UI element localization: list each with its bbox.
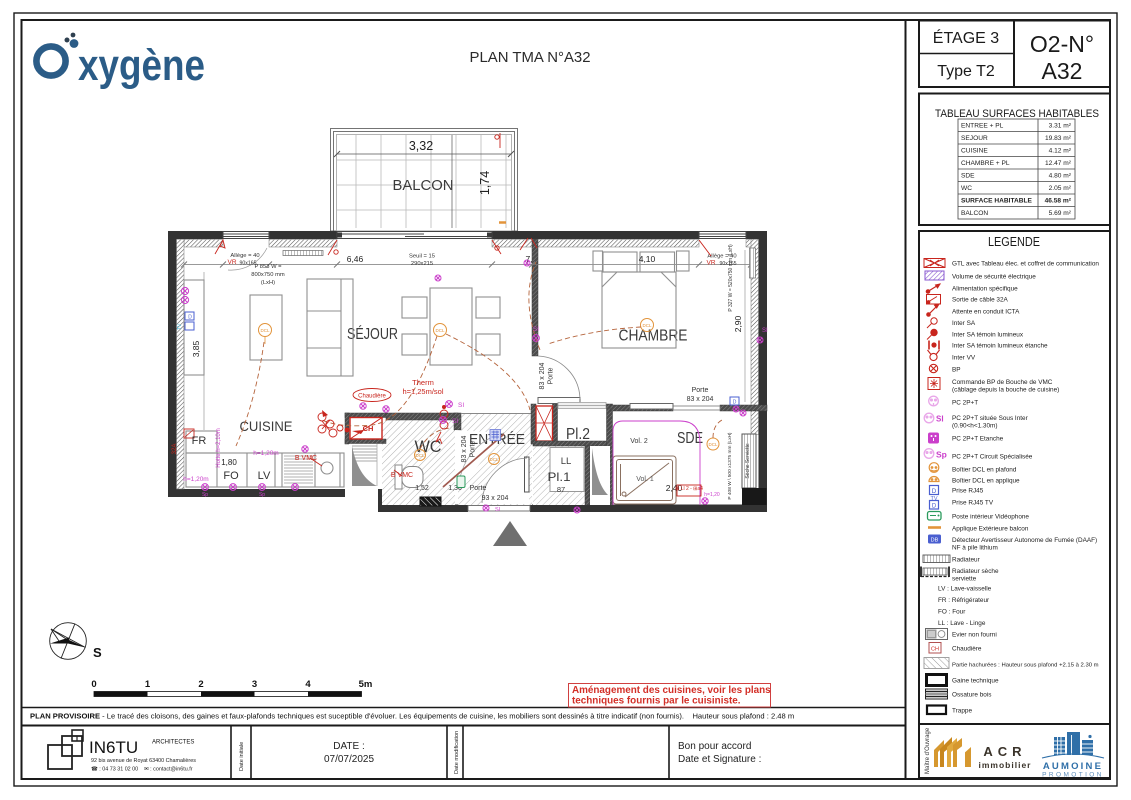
svg-text:Attente en conduit ICTA: Attente en conduit ICTA bbox=[952, 308, 1020, 315]
svg-text:Gaine technique: Gaine technique bbox=[952, 677, 999, 684]
svg-text:Inter SA témoin lumineux: Inter SA témoin lumineux bbox=[952, 331, 1024, 338]
svg-text:SI: SI bbox=[495, 507, 501, 513]
svg-text:SI: SI bbox=[936, 415, 944, 424]
svg-text:Type T2: Type T2 bbox=[937, 63, 995, 80]
svg-text:Aménagement des cuisines, voir: Aménagement des cuisines, voir les plans bbox=[572, 685, 771, 696]
svg-text:WC: WC bbox=[961, 185, 972, 192]
svg-text:Applique Extérieure balcon: Applique Extérieure balcon bbox=[952, 525, 1029, 532]
svg-text:Porte: Porte bbox=[548, 368, 555, 385]
svg-text:93 x 204: 93 x 204 bbox=[482, 495, 509, 502]
svg-text:1,80: 1,80 bbox=[221, 458, 237, 467]
svg-text:CH: CH bbox=[931, 647, 939, 653]
svg-text:Sp: Sp bbox=[202, 492, 208, 498]
svg-text:ÉTAGE 3: ÉTAGE 3 bbox=[933, 28, 999, 47]
svg-text:Date initiale: Date initiale bbox=[239, 742, 245, 771]
svg-text:12.47 m²: 12.47 m² bbox=[1045, 160, 1072, 167]
svg-text:5.69 m²: 5.69 m² bbox=[1049, 210, 1072, 217]
svg-text:2: 2 bbox=[198, 679, 203, 690]
svg-text:SI: SI bbox=[458, 402, 464, 409]
svg-text:3,85: 3,85 bbox=[191, 340, 201, 357]
svg-text:4,10: 4,10 bbox=[639, 254, 656, 264]
svg-text:TABLEAU SURFACES HABITABLES: TABLEAU SURFACES HABITABLES bbox=[935, 108, 1099, 120]
svg-text:TV: TV bbox=[177, 323, 183, 330]
svg-text:AUMOINE: AUMOINE bbox=[1043, 761, 1103, 772]
svg-text:h=1,20m: h=1,20m bbox=[183, 476, 208, 483]
svg-text:A32: A32 bbox=[1042, 58, 1083, 84]
svg-text:O2-N°: O2-N° bbox=[1030, 31, 1094, 57]
svg-text:46.58 m²: 46.58 m² bbox=[1045, 197, 1072, 204]
svg-text:FO: FO bbox=[223, 470, 239, 482]
svg-text:PROMOTION: PROMOTION bbox=[1042, 772, 1104, 779]
svg-text:PLAN TMA N°A32: PLAN TMA N°A32 bbox=[470, 49, 591, 66]
svg-text:DCL: DCL bbox=[260, 328, 269, 333]
svg-text:1,74: 1,74 bbox=[478, 171, 492, 195]
svg-text:Pl.2: Pl.2 bbox=[566, 426, 590, 443]
svg-text:Date et Signature :: Date et Signature : bbox=[678, 754, 761, 765]
svg-text:Trappe: Trappe bbox=[952, 707, 972, 714]
svg-text:4.12 m²: 4.12 m² bbox=[1049, 147, 1072, 154]
svg-text:83 x 204: 83 x 204 bbox=[687, 396, 714, 403]
svg-text:Sp: Sp bbox=[936, 450, 947, 460]
svg-text:SI: SI bbox=[452, 418, 458, 425]
svg-text:☎ : 04 73 31 02 00 ✉ : cont: ☎ : 04 73 31 02 00 ✉ : contact@in6tu.fr bbox=[91, 767, 193, 773]
svg-text:BP: BP bbox=[952, 366, 961, 373]
svg-text:Date modification: Date modification bbox=[454, 731, 460, 774]
svg-text:PLAN PROVISOIRE - Le tracé des: PLAN PROVISOIRE - Le tracé des cloisons,… bbox=[30, 712, 794, 721]
svg-text:techniques fournis par le cuis: techniques fournis par le cuisiniste. bbox=[572, 696, 741, 707]
svg-text:DATE :: DATE : bbox=[333, 741, 364, 752]
svg-text:LEGENDE: LEGENDE bbox=[988, 234, 1040, 249]
svg-text:D: D bbox=[733, 400, 737, 406]
svg-text:(câblage depuis la bouche de c: (câblage depuis la bouche de cuisine) bbox=[952, 386, 1059, 393]
svg-text:CUISINE: CUISINE bbox=[240, 418, 293, 434]
svg-text:3.31 m²: 3.31 m² bbox=[1049, 122, 1072, 129]
svg-text:LL: LL bbox=[561, 456, 572, 467]
svg-text:Porte: Porte bbox=[470, 485, 487, 492]
svg-text:Evier non fourni: Evier non fourni bbox=[952, 631, 997, 638]
svg-text:Prise RJ45 TV: Prise RJ45 TV bbox=[952, 499, 994, 506]
svg-text:IN6TU: IN6TU bbox=[89, 738, 138, 757]
svg-text:GTL avec Tableau élec. et coff: GTL avec Tableau élec. et coffret de com… bbox=[952, 260, 1099, 267]
svg-text:P 408 W \ 500 x1375 mm (LxH): P 408 W \ 500 x1375 mm (LxH) bbox=[727, 432, 733, 499]
svg-text:LL : Lave - Linge: LL : Lave - Linge bbox=[938, 620, 986, 627]
svg-text:Inter SA témoin lumineux étanc: Inter SA témoin lumineux étanche bbox=[952, 342, 1048, 349]
svg-text:Maître d'Ouvrage: Maître d'Ouvrage bbox=[925, 727, 931, 774]
svg-text:Détecteur Avertisseur Autonome: Détecteur Avertisseur Autonome de Fumée … bbox=[952, 537, 1097, 544]
svg-text:Prise RJ45: Prise RJ45 bbox=[952, 487, 984, 494]
svg-text:DB: DB bbox=[931, 538, 939, 544]
svg-text:Vol. 1: Vol. 1 bbox=[636, 476, 654, 483]
svg-text:SÉJOUR: SÉJOUR bbox=[347, 326, 398, 343]
svg-text:19.83 m²: 19.83 m² bbox=[1045, 135, 1072, 142]
svg-text:Porte: Porte bbox=[470, 441, 477, 458]
svg-text:B VMC: B VMC bbox=[391, 472, 413, 479]
svg-text:FR : Réfrigérateur: FR : Réfrigérateur bbox=[938, 597, 990, 604]
svg-text:Boîtier DCL en applique: Boîtier DCL en applique bbox=[952, 477, 1020, 484]
svg-text:Therm: Therm bbox=[412, 378, 434, 387]
svg-text:Alimentation spécifique: Alimentation spécifique bbox=[952, 285, 1018, 292]
svg-text:CHAMBRE: CHAMBRE bbox=[619, 328, 688, 345]
svg-text:2,90: 2,90 bbox=[733, 315, 743, 332]
svg-text:Porte: Porte bbox=[692, 387, 709, 394]
svg-text:87: 87 bbox=[557, 485, 565, 494]
svg-text:Chaudière: Chaudière bbox=[358, 394, 386, 400]
svg-text:xygène: xygène bbox=[78, 41, 205, 90]
svg-text:Sortie de câble 32A: Sortie de câble 32A bbox=[952, 296, 1009, 303]
svg-text:Sèche Serviette: Sèche Serviette bbox=[745, 443, 751, 479]
svg-text:ENTREE + PL: ENTREE + PL bbox=[961, 122, 1004, 129]
svg-text:PC 2P+T Etanche: PC 2P+T Etanche bbox=[952, 435, 1004, 442]
svg-text:h=1,20: h=1,20 bbox=[704, 492, 720, 498]
svg-text:NF à pile lithium: NF à pile lithium bbox=[952, 544, 998, 551]
svg-text:SDE: SDE bbox=[677, 430, 703, 447]
svg-text:0: 0 bbox=[91, 679, 96, 690]
svg-text:32A: 32A bbox=[172, 444, 178, 455]
svg-text:290x215: 290x215 bbox=[411, 261, 433, 267]
svg-text:P 327 W = 520x750 mm (LxH): P 327 W = 520x750 mm (LxH) bbox=[728, 244, 734, 312]
svg-text:DCL: DCL bbox=[708, 442, 717, 447]
svg-text:Seuil = 15: Seuil = 15 bbox=[409, 254, 435, 260]
svg-text:h=1,25m/sol: h=1,25m/sol bbox=[402, 387, 443, 396]
svg-text:2.05 m²: 2.05 m² bbox=[1049, 185, 1072, 192]
svg-text:07/07/2025: 07/07/2025 bbox=[324, 754, 374, 765]
svg-text:CHAMBRE + PL: CHAMBRE + PL bbox=[961, 160, 1010, 167]
svg-text:SEJOUR: SEJOUR bbox=[961, 135, 988, 142]
svg-text:DCL: DCL bbox=[415, 453, 424, 458]
svg-text:VR: VR bbox=[227, 259, 236, 266]
svg-text:serviette: serviette bbox=[952, 575, 977, 582]
svg-text:1,52: 1,52 bbox=[415, 485, 429, 492]
svg-text:S: S bbox=[93, 645, 102, 660]
svg-text:Radiateur sèche: Radiateur sèche bbox=[952, 568, 999, 575]
svg-text:6,46: 6,46 bbox=[347, 254, 364, 264]
svg-text:PC 2P+T située Sous Inter: PC 2P+T située Sous Inter bbox=[952, 415, 1029, 422]
svg-text:Boîtier DCL en plafond: Boîtier DCL en plafond bbox=[952, 466, 1017, 473]
svg-text:SURFACE HABITABLE: SURFACE HABITABLE bbox=[961, 197, 1033, 204]
svg-text:4.80 m²: 4.80 m² bbox=[1049, 172, 1072, 179]
svg-text:VR: VR bbox=[706, 260, 715, 267]
svg-text:D: D bbox=[932, 504, 937, 510]
svg-text:DCL: DCL bbox=[642, 323, 651, 328]
svg-text:4: 4 bbox=[305, 679, 311, 690]
svg-text:CUISINE: CUISINE bbox=[961, 147, 988, 154]
svg-text:1: 1 bbox=[145, 679, 151, 690]
svg-text:Partie hachurées : Hauteur sou: Partie hachurées : Hauteur sous plafond … bbox=[952, 662, 1099, 668]
svg-text:DCL: DCL bbox=[489, 457, 498, 462]
svg-text:Inter VV: Inter VV bbox=[952, 354, 976, 361]
svg-text:BALCON: BALCON bbox=[393, 177, 454, 194]
svg-text:Commande BP de Bouche de VMC: Commande BP de Bouche de VMC bbox=[952, 379, 1053, 386]
svg-text:ARCHITECTES: ARCHITECTES bbox=[152, 740, 194, 746]
svg-text:h=1,20m: h=1,20m bbox=[253, 450, 278, 457]
svg-text:83 x 204: 83 x 204 bbox=[461, 435, 468, 462]
svg-text:83 x 204: 83 x 204 bbox=[539, 362, 546, 389]
svg-text:(LxH): (LxH) bbox=[261, 280, 275, 286]
svg-text:D: D bbox=[932, 488, 937, 495]
svg-text:Radiateur: Radiateur bbox=[952, 556, 981, 563]
svg-text:800x750 mm: 800x750 mm bbox=[251, 272, 285, 278]
svg-text:FR: FR bbox=[192, 435, 207, 447]
svg-text:immobilier: immobilier bbox=[979, 760, 1032, 770]
svg-text:Pl.1: Pl.1 bbox=[548, 470, 571, 484]
svg-text:Volume de sécurité électrique: Volume de sécurité électrique bbox=[952, 273, 1036, 280]
svg-text:ACR: ACR bbox=[983, 744, 1026, 759]
svg-text:⊠ Ll 2 - ⊞a4: ⊠ Ll 2 - ⊞a4 bbox=[675, 486, 703, 492]
svg-text:Ossature bois: Ossature bois bbox=[952, 691, 991, 698]
svg-text:FO : Four: FO : Four bbox=[938, 608, 966, 615]
svg-text:LV: LV bbox=[258, 470, 271, 482]
svg-text:(0.90<h<1.30m): (0.90<h<1.30m) bbox=[952, 422, 997, 429]
svg-text:DCL: DCL bbox=[435, 328, 444, 333]
svg-text:92 bis avenue de Royat 63400 C: 92 bis avenue de Royat 63400 Chamalières bbox=[91, 758, 196, 764]
svg-text:D: D bbox=[188, 315, 192, 321]
svg-text:P 853 W =: P 853 W = bbox=[254, 264, 282, 270]
svg-text:LV : Lave-vaisselle: LV : Lave-vaisselle bbox=[938, 585, 992, 592]
svg-text:PC 2P+T: PC 2P+T bbox=[952, 399, 978, 406]
svg-text:Poste intérieur Vidéophone: Poste intérieur Vidéophone bbox=[952, 513, 1029, 520]
svg-text:B VMC: B VMC bbox=[295, 455, 317, 462]
svg-text:3,32: 3,32 bbox=[409, 139, 433, 153]
svg-text:Inter SA: Inter SA bbox=[952, 320, 976, 327]
svg-text:TV: TV bbox=[930, 496, 937, 502]
svg-text:BALCON: BALCON bbox=[961, 210, 988, 217]
svg-text:SI: SI bbox=[533, 326, 539, 333]
svg-text:3: 3 bbox=[252, 679, 257, 690]
svg-text:SI: SI bbox=[762, 328, 768, 334]
svg-text:Sp: Sp bbox=[259, 492, 265, 498]
svg-text:Bon pour accord: Bon pour accord bbox=[678, 741, 751, 752]
svg-text:PC 2P+T Circuit Spécialisée: PC 2P+T Circuit Spécialisée bbox=[952, 453, 1033, 460]
svg-text:5m: 5m bbox=[359, 679, 373, 690]
svg-text:Vol. 2: Vol. 2 bbox=[630, 438, 648, 445]
svg-text:Chaudière: Chaudière bbox=[952, 645, 982, 652]
svg-text:SDE: SDE bbox=[961, 172, 975, 179]
